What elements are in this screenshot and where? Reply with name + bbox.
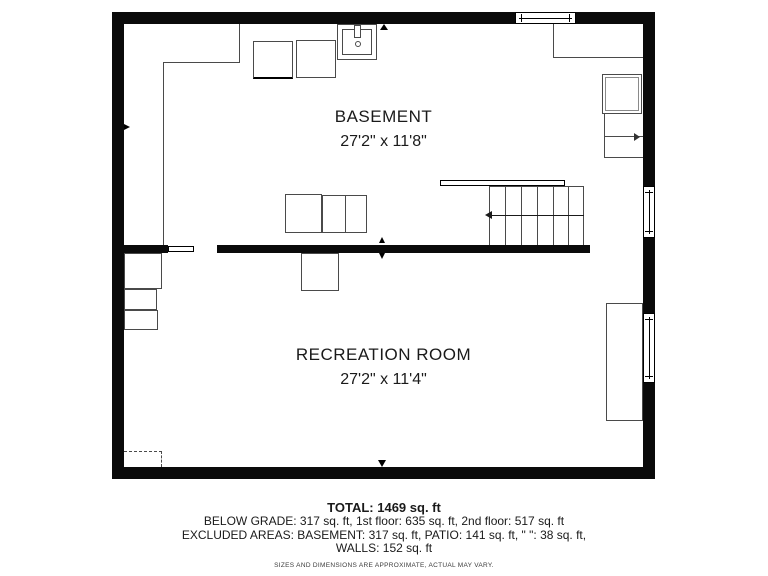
washer [253, 41, 293, 79]
counter-line [553, 24, 554, 57]
direction-marker-icon [380, 24, 388, 30]
room-label-basement: BASEMENT 27'2" x 11'8" [112, 104, 655, 154]
counter-line [553, 57, 643, 58]
area-line: BELOW GRADE: 317 sq. ft, 1st floor: 635 … [0, 515, 768, 529]
shelf [124, 310, 158, 330]
door-leaf [168, 246, 194, 252]
wall-tick-icon [378, 460, 386, 467]
stair-tread-line [537, 187, 538, 245]
measure-marker-icon [379, 237, 385, 243]
stair-walkline [489, 215, 584, 216]
shelf [124, 253, 162, 289]
area-line: EXCLUDED AREAS: BASEMENT: 317 sq. ft, PA… [0, 529, 768, 543]
window-pane-line [649, 190, 650, 234]
wall-bottom [112, 467, 655, 479]
area-line: WALLS: 152 sq. ft [0, 542, 768, 556]
room-dimensions: 27'2" x 11'4" [112, 368, 655, 392]
stair-tread-line [521, 187, 522, 245]
stair-tread-line [553, 187, 554, 245]
sink-drain [355, 41, 361, 47]
wall-divider-right [217, 245, 590, 253]
area-summary: TOTAL: 1469 sq. ft BELOW GRADE: 317 sq. … [0, 501, 768, 570]
window-icon [643, 186, 655, 238]
disclaimer-text: SIZES AND DIMENSIONS ARE APPROXIMATE, AC… [0, 562, 768, 570]
room-name: RECREATION ROOM [112, 342, 655, 368]
shelf [124, 289, 157, 310]
measure-marker-icon [379, 253, 385, 259]
sink-faucet [354, 25, 361, 38]
floor-plan: BASEMENT 27'2" x 11'8" RECREATION ROOM 2… [0, 0, 768, 576]
wall-divider-left [124, 245, 168, 253]
cabinet-double [322, 195, 367, 233]
crawl-space-dashed-outline [124, 451, 162, 467]
stair-direction-arrow-icon [485, 211, 492, 219]
partition-line [239, 24, 240, 62]
wall-left [112, 12, 124, 479]
niche-line [604, 157, 643, 158]
cabinet [285, 194, 322, 233]
room-name: BASEMENT [112, 104, 655, 130]
total-area: TOTAL: 1469 sq. ft [0, 501, 768, 515]
stair-tread-line [568, 187, 569, 245]
cabinet [301, 253, 339, 291]
room-dimensions: 27'2" x 11'8" [112, 130, 655, 154]
stair-tread-line [505, 187, 506, 245]
dryer [296, 40, 336, 78]
partition-line [163, 62, 240, 63]
wall-right [643, 12, 655, 479]
room-label-recreation: RECREATION ROOM 27'2" x 11'4" [112, 342, 655, 392]
window-pane-line [519, 18, 572, 19]
cabinet-divider-line [345, 196, 346, 232]
window-icon [515, 12, 576, 24]
